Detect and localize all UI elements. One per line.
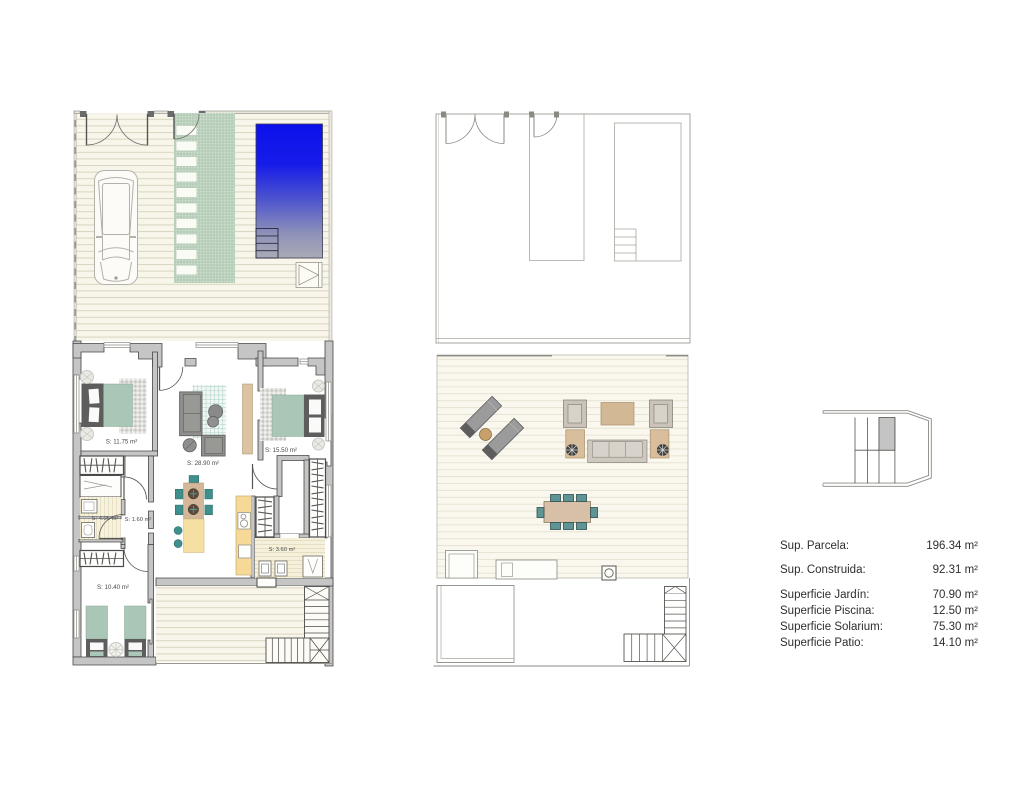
svg-text:14.10 m²: 14.10 m²	[933, 637, 979, 649]
svg-text:75.30 m²: 75.30 m²	[933, 621, 979, 633]
svg-text:Superficie Jardín:: Superficie Jardín:	[780, 589, 870, 601]
svg-text:70.90 m²: 70.90 m²	[933, 589, 979, 601]
svg-text:Sup. Parcela:: Sup. Parcela:	[780, 540, 849, 552]
svg-text:S: 15.50 m²: S: 15.50 m²	[265, 447, 297, 454]
svg-text:92.31 m²: 92.31 m²	[933, 564, 979, 576]
svg-text:S: 11.75 m²: S: 11.75 m²	[106, 439, 138, 446]
svg-text:S: 10.40 m²: S: 10.40 m²	[97, 584, 129, 591]
svg-text:196.34 m²: 196.34 m²	[926, 540, 978, 552]
svg-text:S: 4.05 m²: S: 4.05 m²	[92, 516, 119, 522]
svg-text:S: 3.60 m²: S: 3.60 m²	[269, 547, 296, 553]
svg-text:Sup. Construida:: Sup. Construida:	[780, 564, 866, 576]
svg-text:Superficie Piscina:: Superficie Piscina:	[780, 605, 875, 617]
svg-text:12.50 m²: 12.50 m²	[933, 605, 979, 617]
svg-text:Superficie Solarium:: Superficie Solarium:	[780, 621, 883, 633]
svg-text:S: 28.90 m²: S: 28.90 m²	[187, 460, 219, 467]
svg-text:Superficie Patio:: Superficie Patio:	[780, 637, 864, 649]
svg-text:S: 1.60 m²: S: 1.60 m²	[125, 517, 152, 523]
